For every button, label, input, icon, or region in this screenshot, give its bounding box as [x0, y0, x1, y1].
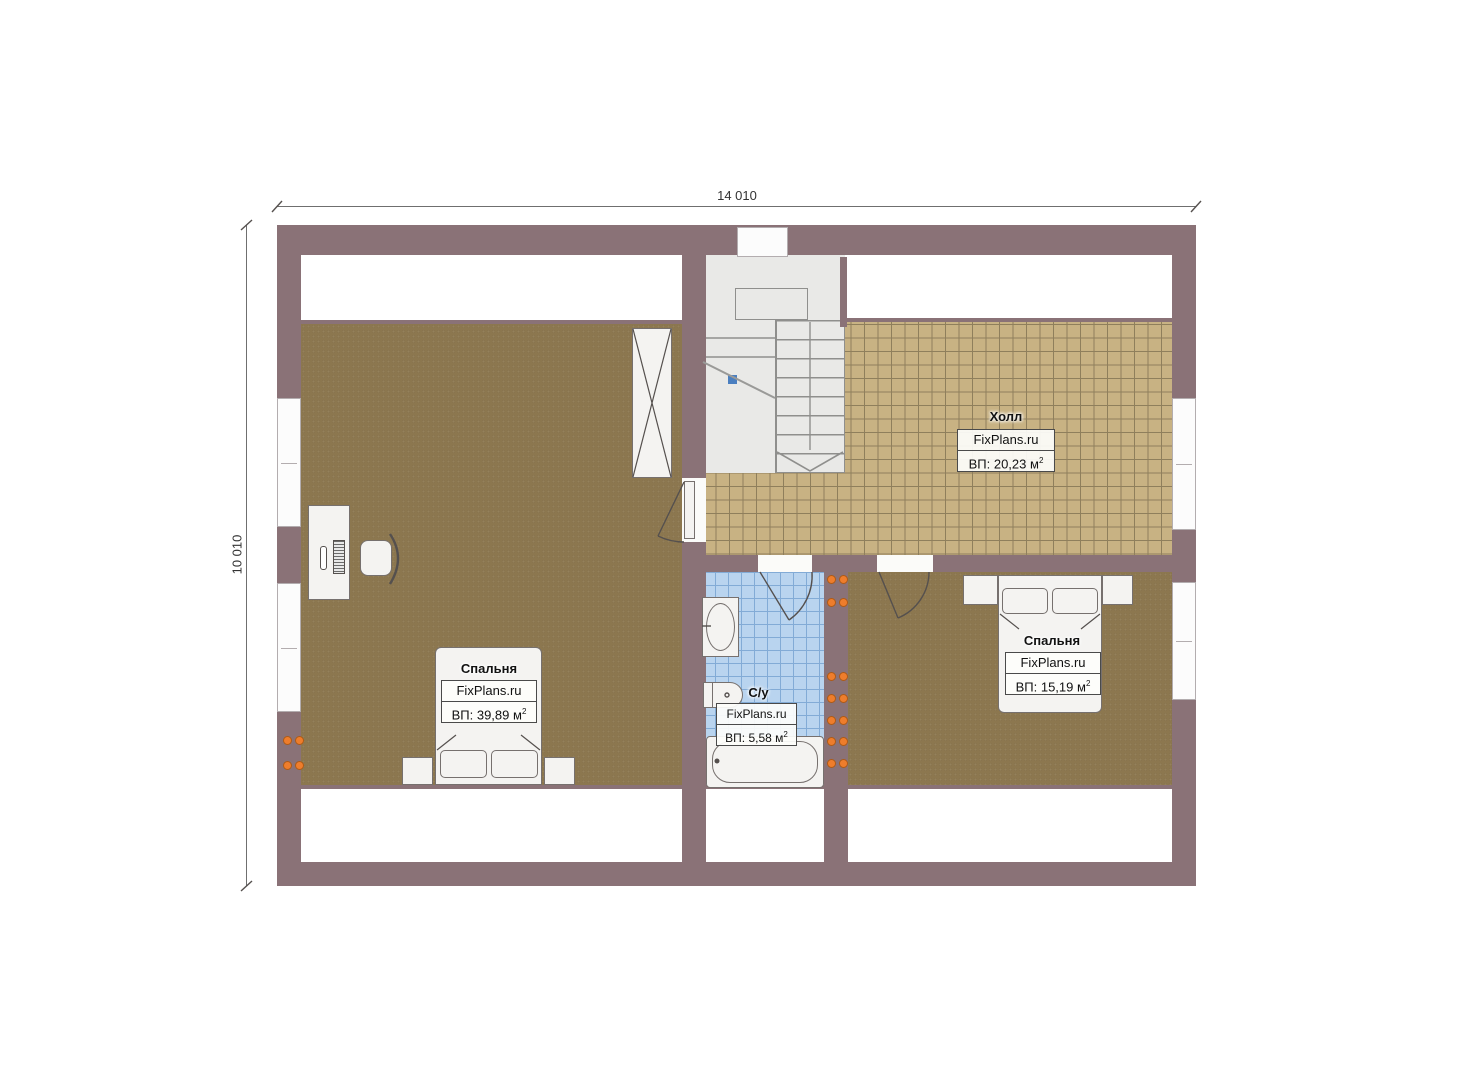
wall-left-upper: [277, 225, 301, 398]
radiator-dot-icon: [827, 716, 836, 725]
nightstand-right-a: [963, 575, 998, 605]
window-left-lower: [277, 583, 301, 712]
area-value: ВП: 20,23 м2: [958, 450, 1054, 471]
brand-watermark: FixPlans.ru: [1006, 653, 1100, 673]
radiator-section: [826, 759, 848, 768]
radiator-dot-icon: [827, 672, 836, 681]
area-sup: 2: [783, 730, 787, 739]
label-hall-box: FixPlans.ru ВП: 20,23 м2: [957, 429, 1055, 472]
toilet-tank-line: [712, 683, 713, 707]
label-bedroom-left-box: FixPlans.ru ВП: 39,89 м2: [441, 680, 537, 723]
radiator-dot-icon: [827, 694, 836, 703]
window-right-lower: [1172, 582, 1196, 700]
area-value: ВП: 15,19 м2: [1006, 673, 1100, 694]
wall-hall-bottom-1: [682, 555, 758, 572]
area-text: ВП: 15,19 м: [1016, 679, 1086, 694]
radiator-dot-icon: [839, 716, 848, 725]
radiator-dot-icon: [839, 598, 848, 607]
area-sup: 2: [522, 707, 526, 716]
radiator-section: [826, 598, 848, 607]
radiator-dot-icon: [827, 737, 836, 746]
nightstand-left-b: [544, 757, 575, 785]
bed-left-pillow-1: [440, 750, 487, 778]
area-text: ВП: 39,89 м: [452, 707, 522, 722]
label-bedroom-right-title: Спальня: [1000, 633, 1104, 648]
wall-hall-bottom-3: [933, 555, 1172, 572]
radiator-section: [826, 737, 848, 746]
nightstand-left-a: [402, 757, 433, 785]
area-text: ВП: 5,58 м: [725, 731, 783, 745]
wall-hall-bottom-2: [812, 555, 877, 572]
wall-right-pier: [1172, 530, 1196, 582]
brand-watermark: FixPlans.ru: [442, 681, 536, 701]
bed-left-pillow-2: [491, 750, 538, 778]
radiator-dot-icon: [827, 598, 836, 607]
kneewall-top-hall: [845, 318, 1172, 322]
radiator-dot-icon: [283, 761, 292, 770]
radiator-dot-icon: [839, 737, 848, 746]
kneewall-bottom-left: [301, 785, 682, 789]
wall-stair-right-stub: [840, 257, 847, 327]
bed-right-pillow-1: [1002, 588, 1048, 614]
radiator-dot-icon: [295, 736, 304, 745]
radiator-section: [826, 694, 848, 703]
radiator-left: [282, 736, 304, 770]
radiator-dot-icon: [839, 575, 848, 584]
radiator-dot-icon: [295, 761, 304, 770]
dim-line-width: [277, 206, 1196, 207]
stair-treads: [775, 320, 845, 473]
wall-left-lower: [277, 712, 301, 862]
radiator-section: [826, 672, 848, 681]
towel-radiator-lower: [826, 672, 848, 768]
area-value: ВП: 39,89 м2: [442, 701, 536, 722]
radiator-dot-icon: [839, 759, 848, 768]
radiator-section: [826, 716, 848, 725]
label-bathroom-box: FixPlans.ru ВП: 5,58 м2: [716, 703, 797, 746]
radiator-dot-icon: [283, 736, 292, 745]
label-hall-title: Холл: [956, 409, 1056, 424]
bed-right-pillow-2: [1052, 588, 1098, 614]
wall-right-lower: [1172, 700, 1196, 862]
area-value: ВП: 5,58 м2: [717, 724, 796, 745]
wall-bottom: [277, 862, 1196, 886]
keyboard-glyph: [320, 546, 327, 570]
area-sup: 2: [1086, 679, 1090, 688]
window-left-upper: [277, 398, 301, 527]
radiator-section: [282, 736, 304, 745]
office-chair-seat: [360, 540, 392, 576]
dormer-window-top: [737, 227, 788, 257]
radiator-dot-icon: [839, 672, 848, 681]
door-opening-bedroom-right: [877, 555, 933, 572]
wall-left-pier: [277, 527, 301, 583]
window-right-upper: [1172, 398, 1196, 530]
brand-watermark: FixPlans.ru: [958, 430, 1054, 450]
area-sup: 2: [1039, 456, 1043, 465]
nightstand-right-b: [1102, 575, 1133, 605]
wall-stair-left-upper: [682, 255, 706, 478]
radiator-dot-icon: [827, 759, 836, 768]
area-text: ВП: 20,23 м: [969, 456, 1039, 471]
kneewall-top-left: [301, 320, 682, 324]
wardrobe: [632, 328, 672, 478]
door-opening-bathroom: [758, 555, 812, 572]
dim-height-label: 10 010: [230, 520, 245, 590]
brand-watermark: FixPlans.ru: [717, 704, 796, 724]
dim-line-height: [246, 225, 247, 886]
sink-basin: [706, 603, 735, 651]
door-leaf-bedroom-left: [684, 481, 695, 539]
radiator-section: [826, 575, 848, 584]
floor-plan: 14 010 10 010: [0, 0, 1474, 1080]
bathtub-inner: [712, 741, 818, 783]
stair-landing-outline: [735, 288, 808, 320]
label-bedroom-right-box: FixPlans.ru ВП: 15,19 м2: [1005, 652, 1101, 695]
label-bathroom-title: С/у: [726, 685, 791, 700]
radiator-section: [282, 761, 304, 770]
radiator-dot-icon: [827, 575, 836, 584]
label-bedroom-left-title: Спальня: [434, 661, 544, 676]
kneewall-bottom-right: [848, 785, 1172, 789]
dim-width-label: 14 010: [637, 188, 837, 203]
towel-radiator-upper: [826, 575, 848, 607]
stair-section-marker: [728, 375, 737, 384]
hall-floor-lower: [706, 473, 847, 555]
wall-right-upper: [1172, 225, 1196, 398]
monitor-glyph: [333, 540, 345, 574]
radiator-dot-icon: [839, 694, 848, 703]
